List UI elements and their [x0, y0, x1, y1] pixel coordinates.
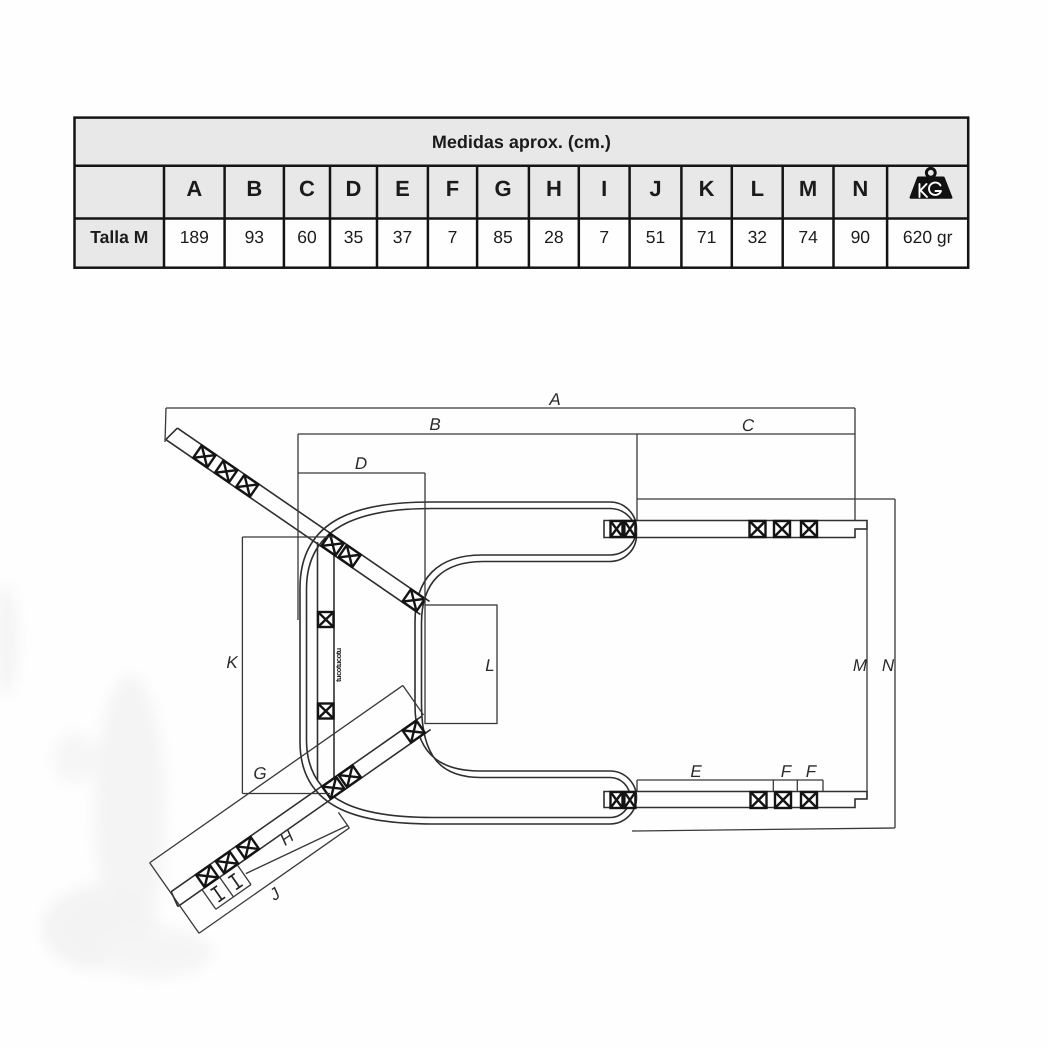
svg-text:M: M: [799, 176, 817, 201]
svg-text:H: H: [546, 176, 562, 201]
svg-text:90: 90: [851, 227, 871, 247]
svg-text:D: D: [355, 454, 367, 473]
svg-text:N: N: [882, 656, 895, 675]
svg-text:Medidas aprox. (cm.): Medidas aprox. (cm.): [432, 132, 611, 152]
svg-text:189: 189: [180, 227, 209, 247]
svg-text:32: 32: [748, 227, 767, 247]
svg-text:37: 37: [393, 227, 412, 247]
svg-text:F: F: [446, 176, 459, 201]
svg-text:28: 28: [544, 227, 563, 247]
svg-text:7: 7: [599, 227, 609, 247]
svg-text:Talla M: Talla M: [90, 227, 148, 247]
svg-text:620 gr: 620 gr: [903, 227, 953, 247]
svg-text:B: B: [246, 176, 262, 201]
svg-text:E: E: [395, 176, 410, 201]
svg-text:D: D: [346, 176, 362, 201]
svg-text:tucotucotu: tucotucotu: [334, 647, 343, 682]
svg-text:F: F: [806, 762, 818, 781]
svg-text:71: 71: [697, 227, 716, 247]
svg-text:J: J: [649, 176, 661, 201]
svg-text:B: B: [429, 415, 440, 434]
svg-text:K: K: [226, 653, 238, 672]
svg-text:K: K: [699, 176, 715, 201]
svg-text:A: A: [548, 390, 560, 409]
svg-text:F: F: [781, 762, 793, 781]
svg-text:I: I: [601, 176, 607, 201]
svg-text:7: 7: [448, 227, 458, 247]
svg-text:60: 60: [297, 227, 317, 247]
svg-text:74: 74: [798, 227, 818, 247]
svg-text:G: G: [253, 764, 266, 783]
svg-text:93: 93: [245, 227, 264, 247]
svg-text:L: L: [751, 176, 764, 201]
svg-text:N: N: [852, 176, 868, 201]
svg-text:A: A: [186, 176, 202, 201]
svg-text:E: E: [690, 762, 702, 781]
svg-text:G: G: [494, 176, 511, 201]
svg-text:L: L: [485, 656, 494, 675]
svg-text:C: C: [299, 176, 315, 201]
svg-text:35: 35: [344, 227, 363, 247]
svg-text:M: M: [853, 656, 868, 675]
svg-text:C: C: [742, 416, 755, 435]
svg-text:51: 51: [646, 227, 665, 247]
svg-text:85: 85: [493, 227, 512, 247]
